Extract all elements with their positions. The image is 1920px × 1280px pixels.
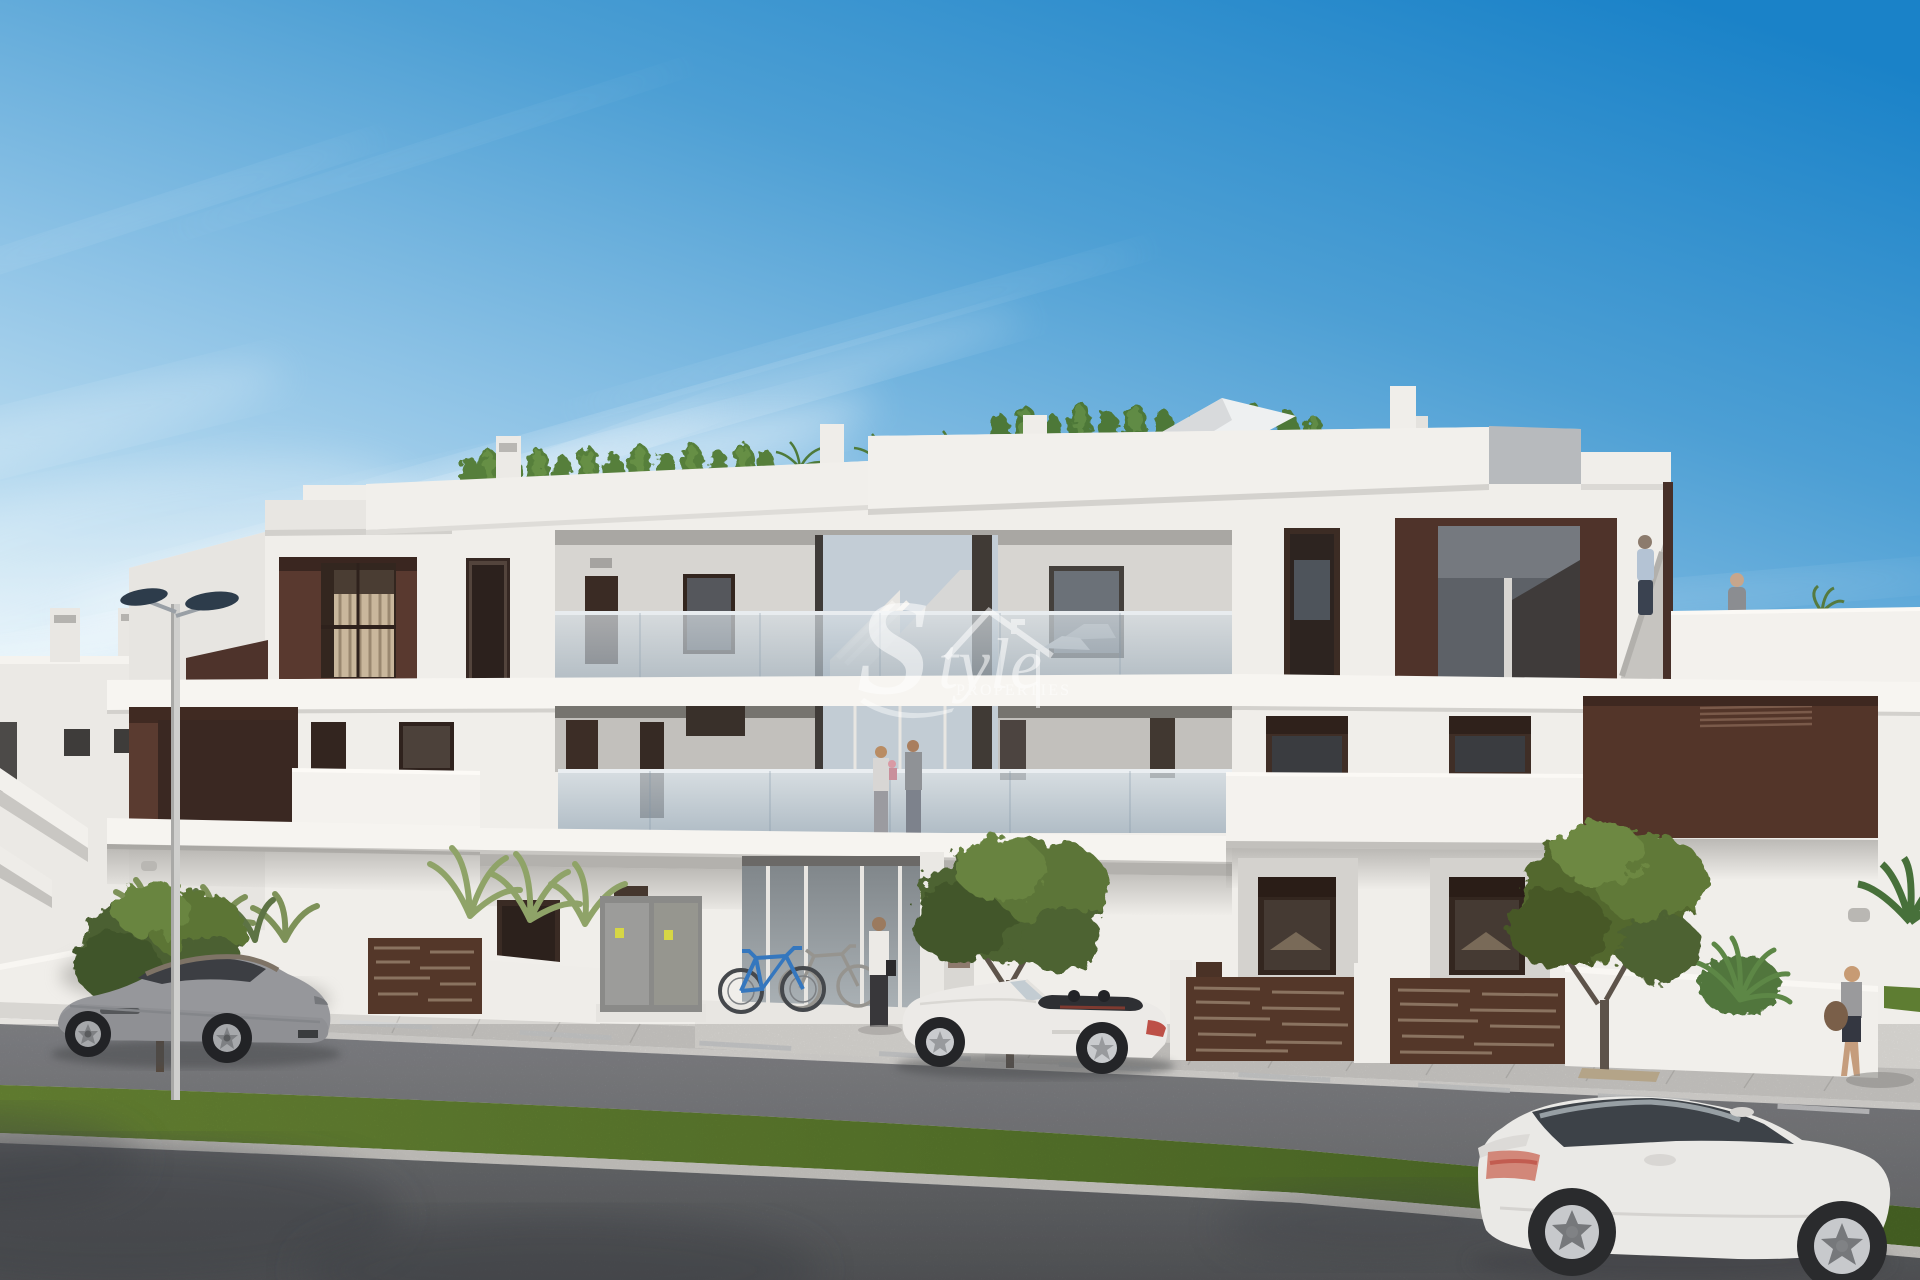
svg-text:PROPERTIES: PROPERTIES <box>956 682 1071 699</box>
